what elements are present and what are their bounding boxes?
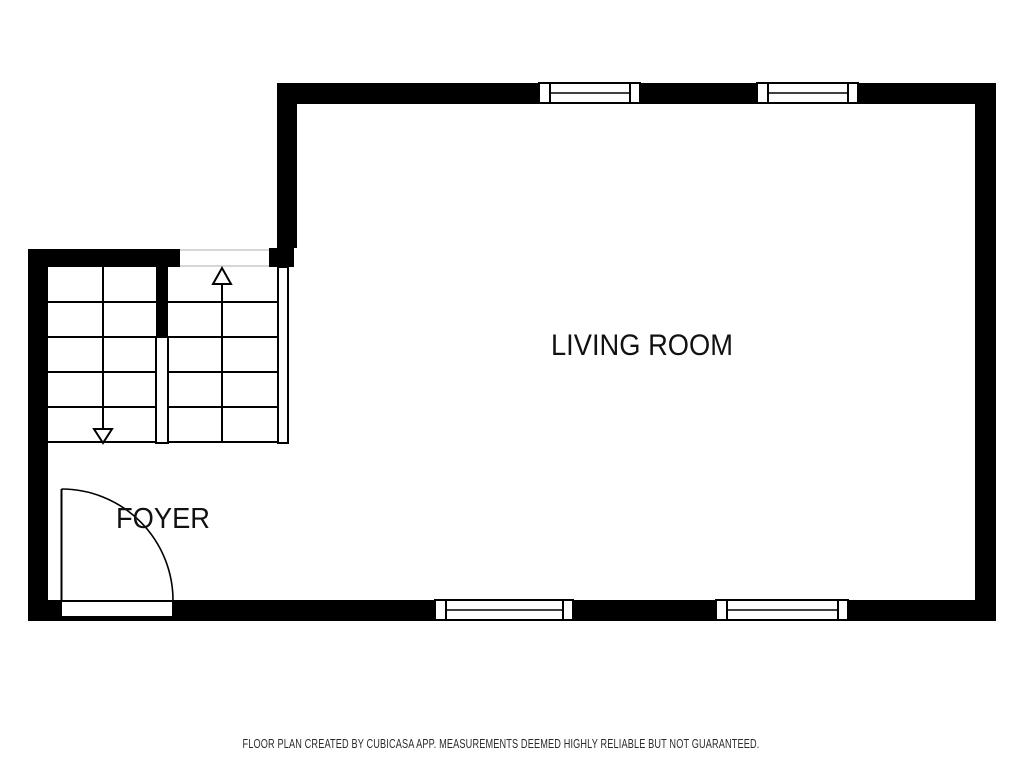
stairs-down-arrow-icon — [94, 267, 112, 443]
wall-livingroom-left-foot — [269, 248, 294, 267]
footer-disclaimer: FLOOR PLAN CREATED BY CUBICASA APP. MEAS… — [243, 736, 760, 751]
stair-divider-rail — [156, 337, 168, 443]
floor-plan-canvas: LIVING ROOM FOYER FLOOR PLAN CREATED BY … — [0, 0, 1024, 768]
walls — [28, 83, 996, 621]
window-bottom-1 — [435, 600, 573, 620]
wall-livingroom-left — [277, 83, 297, 248]
wall-stair-divider-stub — [156, 267, 168, 337]
room-label-living-room: LIVING ROOM — [551, 329, 733, 362]
window-bottom-2 — [716, 600, 848, 620]
window-top-1 — [539, 83, 640, 103]
window-top-2 — [757, 83, 858, 103]
room-label-foyer: FOYER — [116, 503, 210, 535]
arrow-head-up — [213, 268, 231, 284]
wall-stair-top — [28, 249, 180, 267]
stairs-up-arrow-icon — [213, 268, 231, 442]
floor-plan-page: LIVING ROOM FOYER FLOOR PLAN CREATED BY … — [0, 0, 1024, 768]
door-opening — [61, 601, 173, 617]
stair-right-rail — [278, 267, 288, 443]
arrow-head-down — [94, 429, 112, 443]
wall-right — [975, 83, 996, 621]
wall-left — [28, 249, 48, 621]
stair-opening-gap — [180, 250, 269, 266]
